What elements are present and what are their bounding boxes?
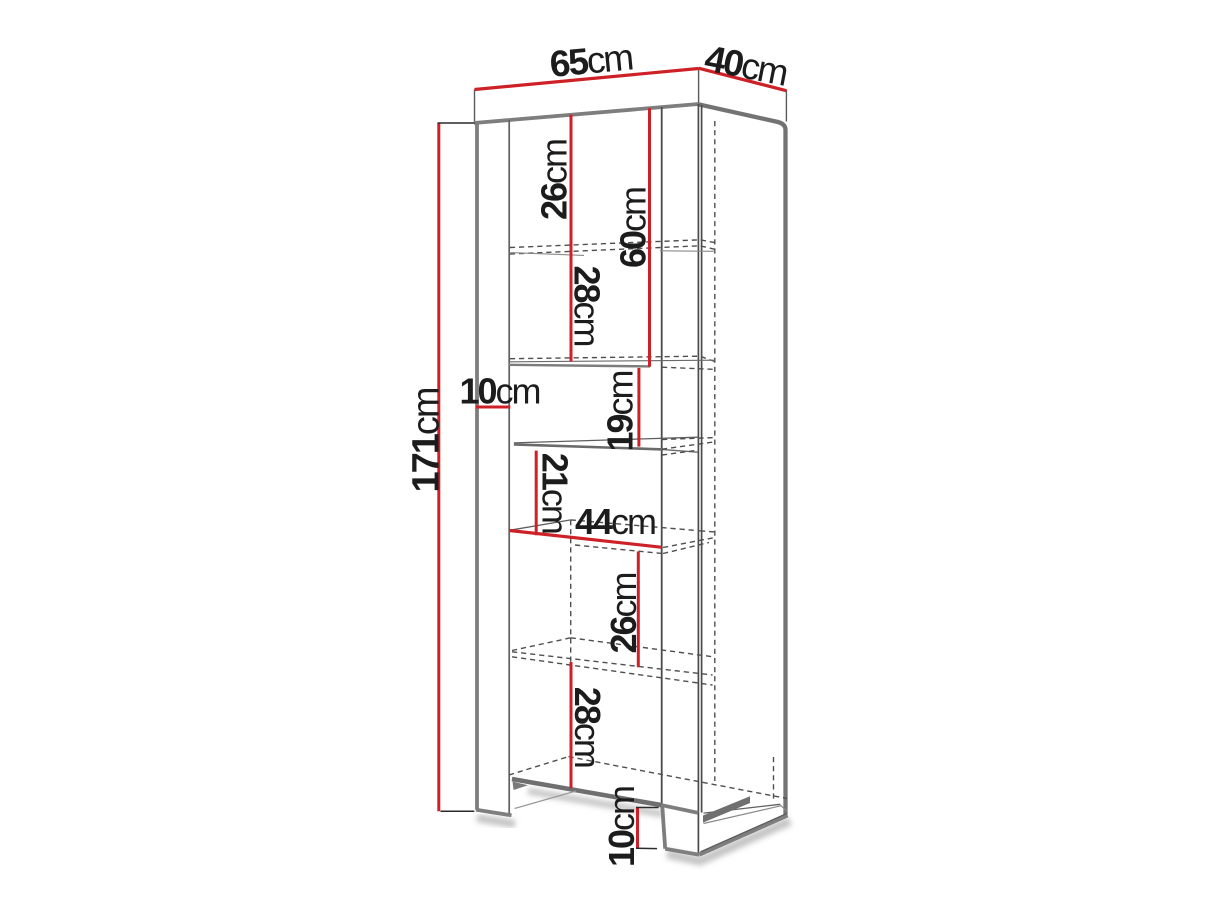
svg-text:28cm: 28cm	[567, 687, 608, 767]
svg-text:44cm: 44cm	[575, 501, 655, 542]
svg-text:171cm: 171cm	[405, 388, 447, 492]
svg-text:65cm: 65cm	[548, 36, 634, 85]
svg-text:10cm: 10cm	[601, 787, 642, 867]
svg-text:21cm: 21cm	[534, 453, 575, 533]
svg-text:26cm: 26cm	[534, 140, 575, 220]
svg-text:10cm: 10cm	[460, 371, 540, 412]
svg-text:60cm: 60cm	[612, 188, 653, 268]
svg-text:19cm: 19cm	[600, 371, 641, 451]
svg-text:26cm: 26cm	[603, 573, 644, 653]
svg-text:28cm: 28cm	[567, 266, 608, 346]
